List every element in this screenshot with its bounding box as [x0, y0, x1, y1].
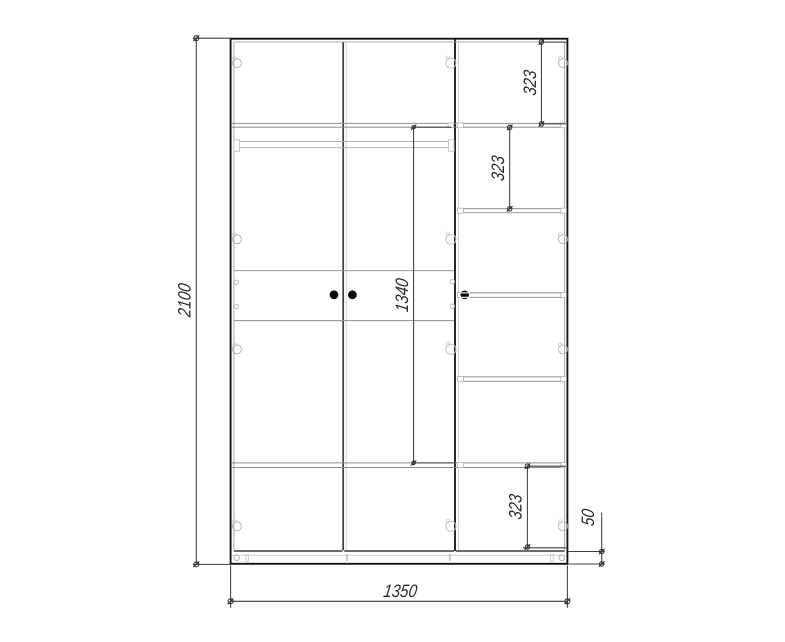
svg-text:1340: 1340	[392, 276, 413, 313]
svg-text:1350: 1350	[382, 581, 419, 602]
svg-text:2100: 2100	[174, 281, 195, 319]
svg-text:323: 323	[520, 68, 541, 96]
svg-text:323: 323	[505, 492, 526, 520]
svg-text:323: 323	[488, 154, 509, 182]
